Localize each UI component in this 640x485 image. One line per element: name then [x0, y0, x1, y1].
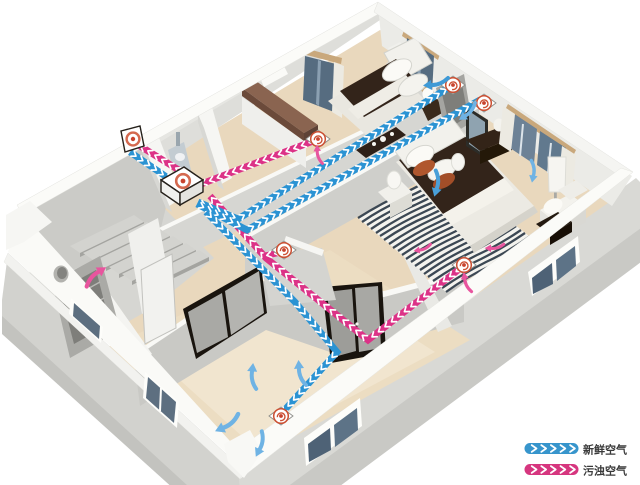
svg-text:污浊空气: 污浊空气 — [583, 464, 627, 478]
svg-text:新鲜空气: 新鲜空气 — [583, 443, 627, 457]
